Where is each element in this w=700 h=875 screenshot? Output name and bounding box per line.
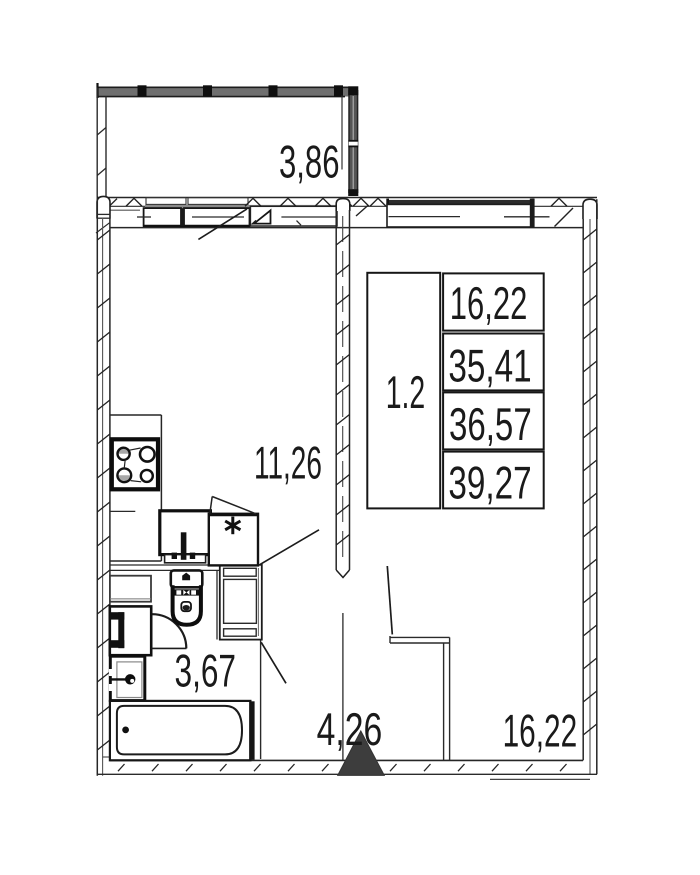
svg-text:11,26: 11,26 [254, 437, 322, 489]
svg-text:16,22: 16,22 [503, 704, 578, 756]
svg-text:39,27: 39,27 [448, 456, 531, 508]
svg-text:36,57: 36,57 [449, 398, 532, 450]
svg-text:3,67: 3,67 [175, 645, 237, 697]
svg-text:1.2: 1.2 [386, 366, 426, 418]
svg-text:3,86: 3,86 [279, 135, 340, 187]
svg-text:16,22: 16,22 [450, 277, 528, 329]
svg-text:35,41: 35,41 [448, 340, 531, 392]
svg-text:4,26: 4,26 [317, 703, 383, 755]
